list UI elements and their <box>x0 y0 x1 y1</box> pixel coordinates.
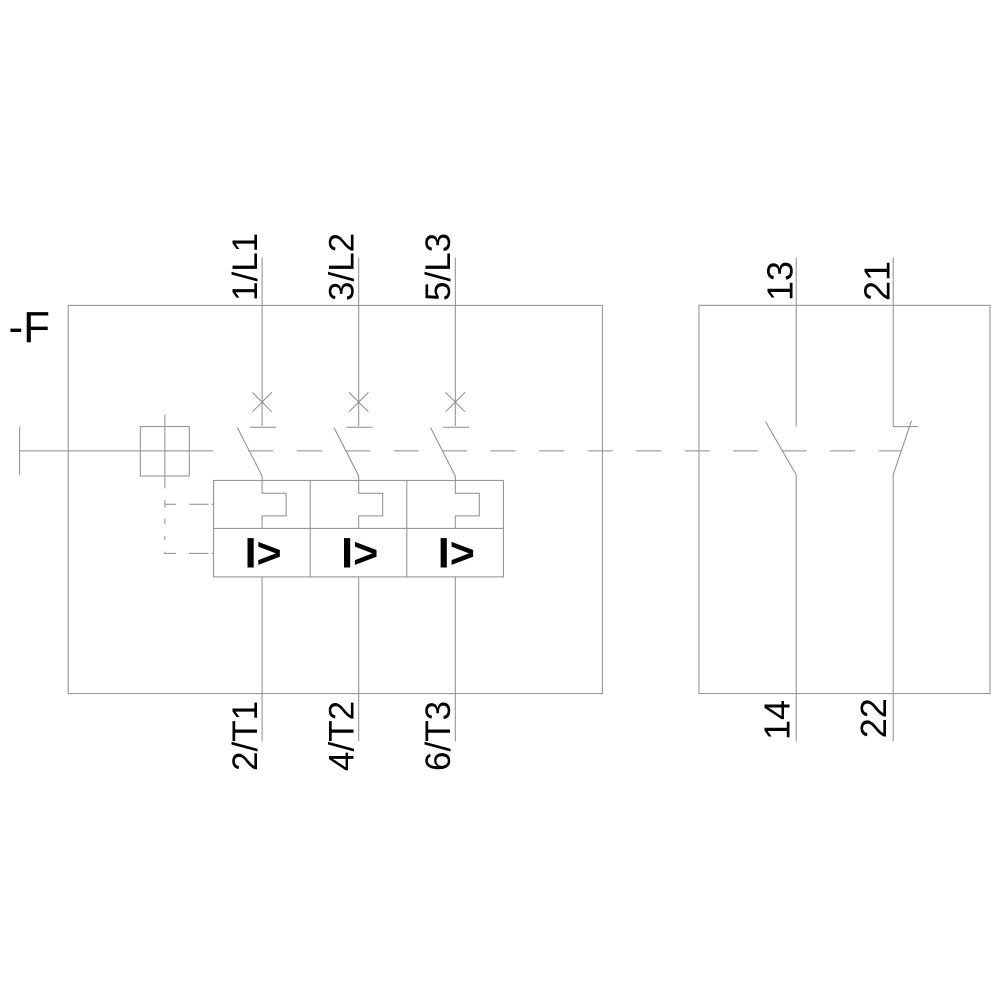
svg-text:22: 22 <box>853 698 894 738</box>
svg-text:-F: -F <box>9 303 51 352</box>
svg-text:I>: I> <box>438 530 475 578</box>
svg-text:13: 13 <box>760 261 801 301</box>
svg-text:I>: I> <box>245 530 282 578</box>
svg-text:3/L2: 3/L2 <box>323 233 362 301</box>
svg-text:2/T1: 2/T1 <box>226 701 265 771</box>
svg-text:1/L1: 1/L1 <box>226 233 265 301</box>
svg-text:14: 14 <box>756 700 797 740</box>
svg-text:21: 21 <box>856 261 897 301</box>
svg-text:5/L3: 5/L3 <box>419 233 458 301</box>
svg-text:4/T2: 4/T2 <box>323 701 362 771</box>
svg-text:6/T3: 6/T3 <box>419 701 458 771</box>
svg-text:I>: I> <box>341 530 378 578</box>
